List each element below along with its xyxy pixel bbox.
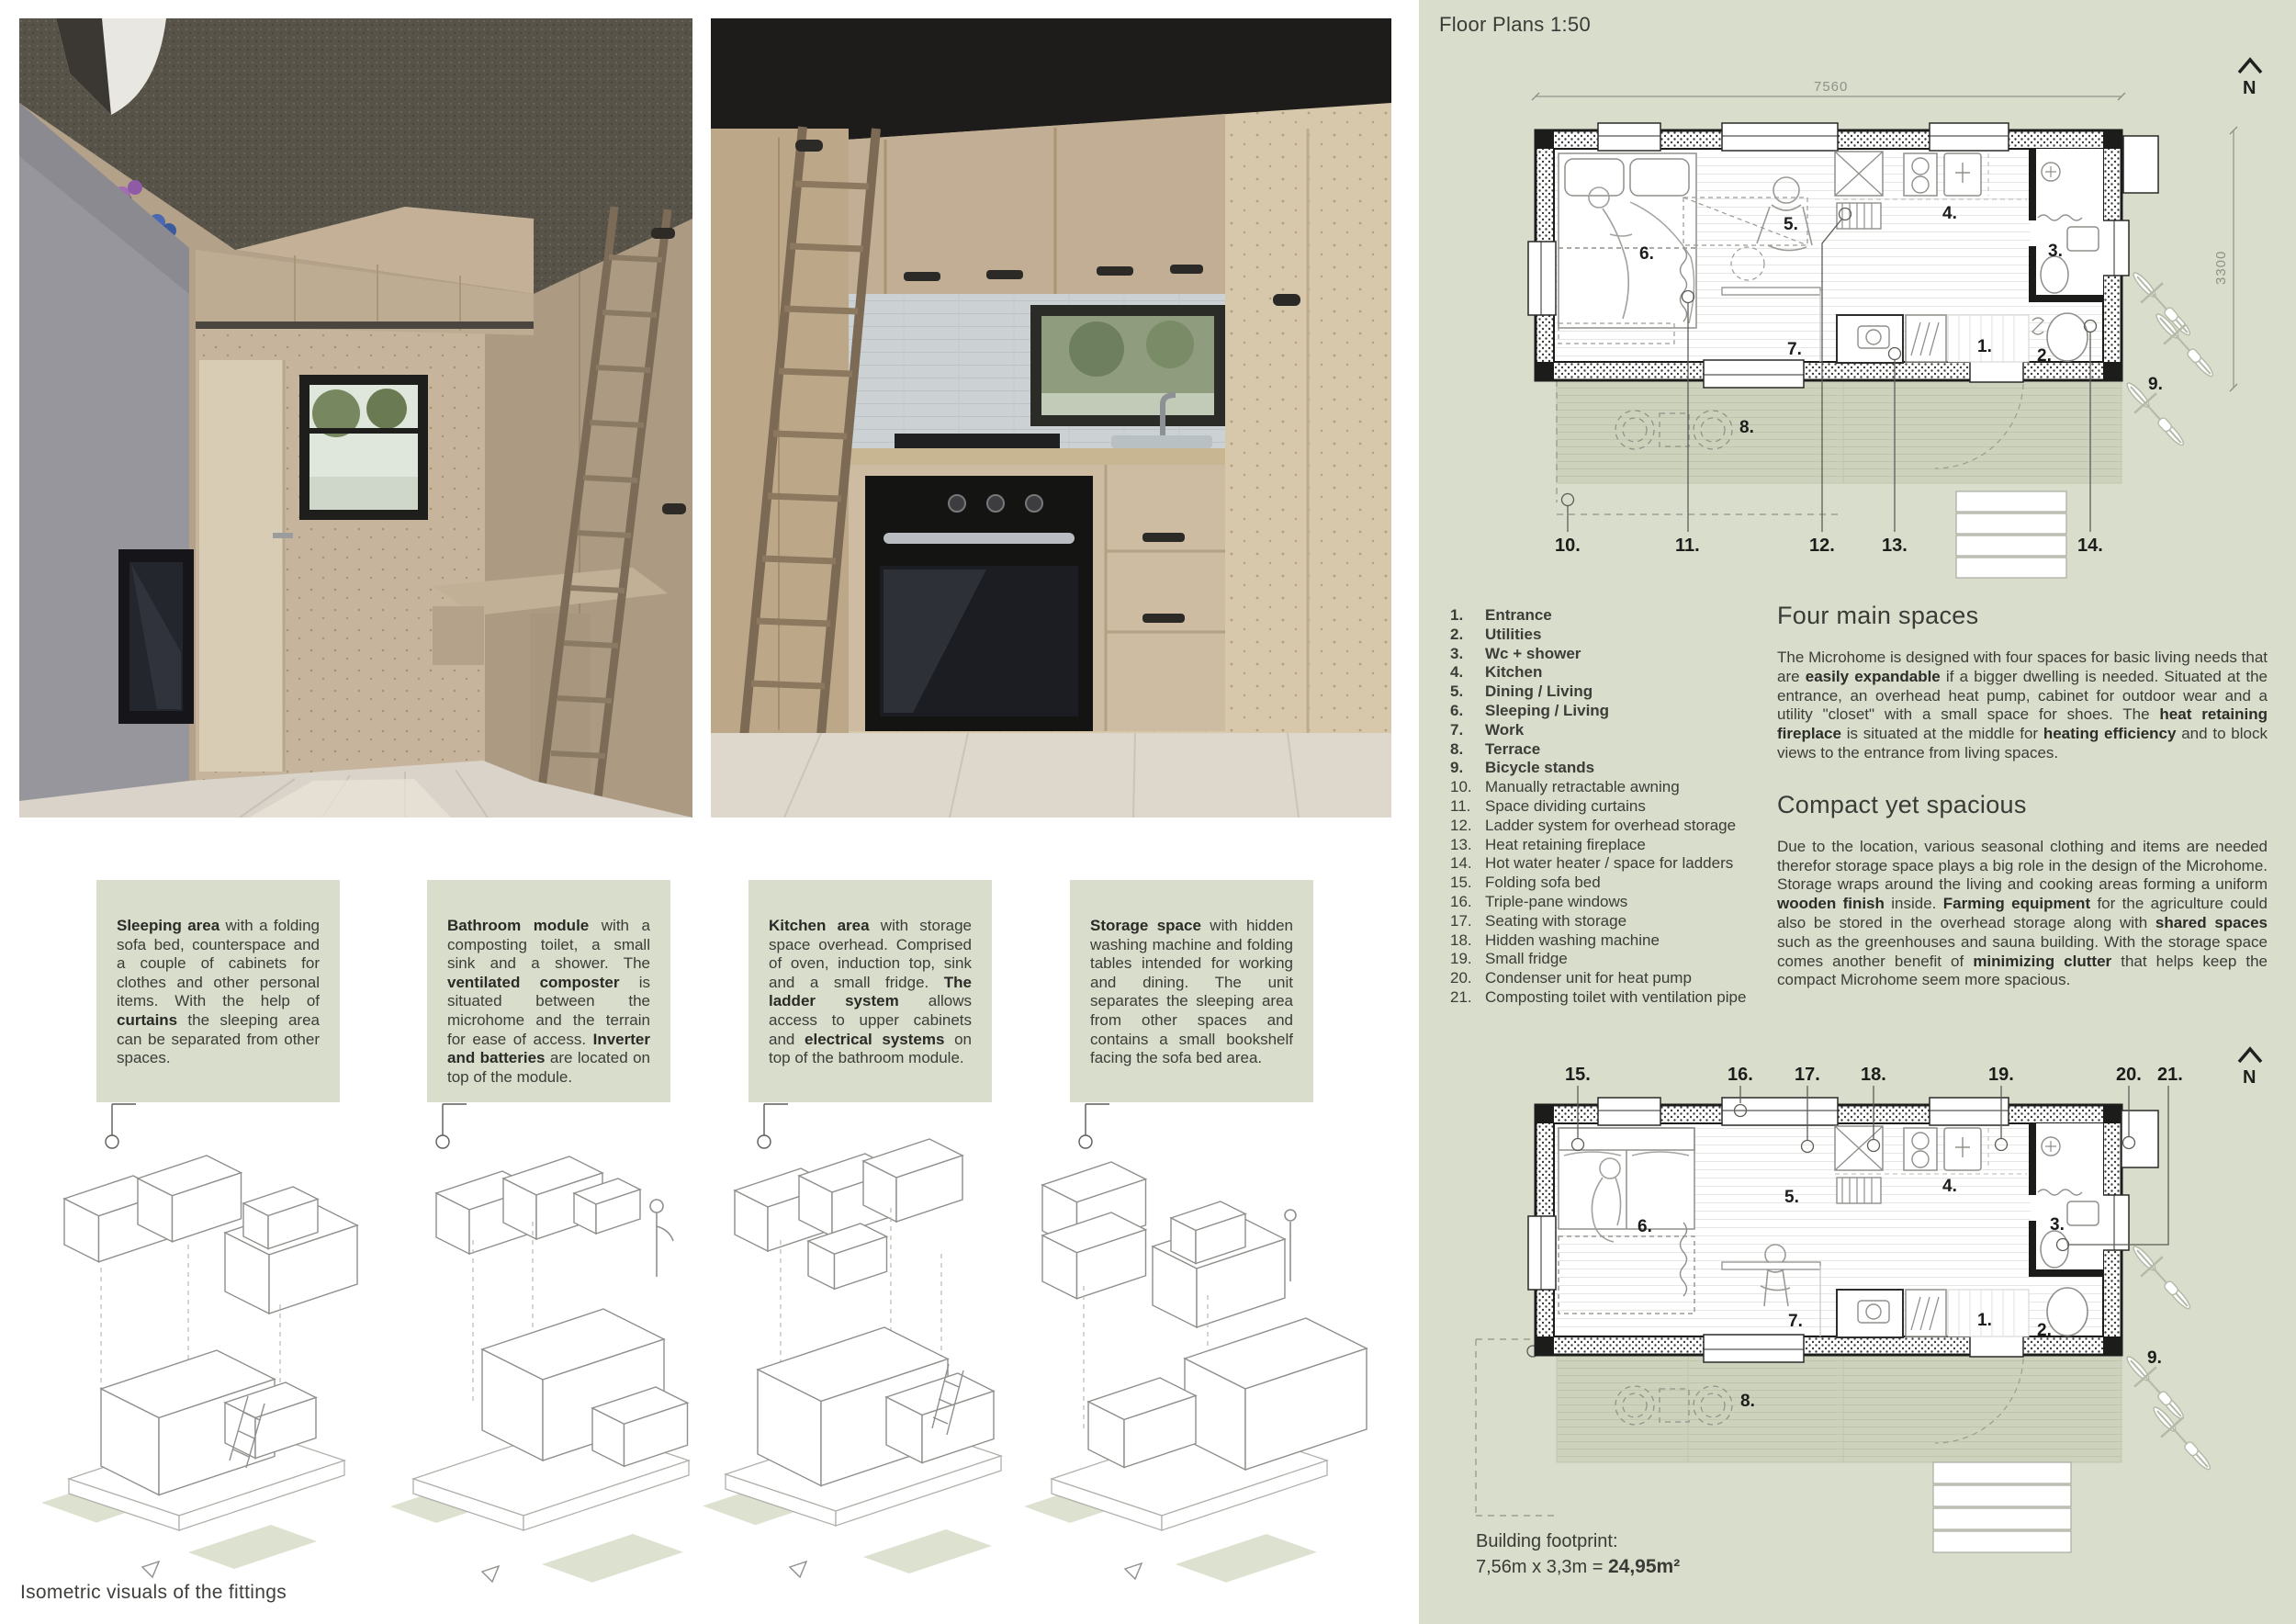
stored-ladder — [1837, 203, 1881, 229]
svg-text:8.: 8. — [1740, 1392, 1755, 1411]
svg-text:12.: 12. — [1809, 536, 1835, 556]
legend-item: 20.Condenser unit for heat pump — [1445, 969, 1775, 988]
legend-item: 1.Entrance — [1445, 606, 1775, 626]
coat-closet — [1906, 315, 1946, 362]
svg-text:10.: 10. — [1555, 536, 1581, 556]
isometric-fittings-drawings — [0, 1102, 1419, 1603]
photo2-sink — [1111, 435, 1212, 448]
svg-text:6.: 6. — [1638, 1217, 1652, 1236]
svg-text:2.: 2. — [2037, 1321, 2052, 1340]
section-heading: Four main spaces — [1777, 602, 2268, 630]
legend-item: 8.Terrace — [1445, 740, 1775, 760]
iso-group-kitchen — [703, 1139, 1001, 1577]
legend-item: 18.Hidden washing machine — [1445, 931, 1775, 951]
svg-text:4.: 4. — [1942, 204, 1957, 223]
legend-item: 11.Space dividing curtains — [1445, 797, 1775, 817]
section-paragraph: Due to the location, various seasonal cl… — [1777, 838, 2268, 990]
north-arrow: N — [2239, 1049, 2261, 1088]
note-text: Sleeping area with a folding sofa bed, c… — [117, 917, 320, 1066]
terrace-steps — [1956, 491, 2066, 578]
svg-text:N: N — [2243, 78, 2256, 98]
folding-table — [1722, 288, 1820, 295]
svg-text:18.: 18. — [1861, 1065, 1886, 1085]
photo-interior-living — [19, 18, 692, 818]
legend-item: 14.Hot water heater / space for ladders — [1445, 854, 1775, 874]
folding-table — [1722, 1262, 1820, 1269]
legend-item: 13.Heat retaining fireplace — [1445, 836, 1775, 855]
legend-item: 2.Utilities — [1445, 626, 1775, 645]
stored-ladder — [1837, 1178, 1881, 1203]
panel-title: Floor Plans 1:50 — [1439, 13, 1591, 37]
legend-item: 7.Work — [1445, 721, 1775, 740]
legend-item: 3.Wc + shower — [1445, 645, 1775, 664]
note-text: Storage space with hidden washing machin… — [1090, 917, 1293, 1066]
presentation-board: Sleeping area with a folding sofa bed, c… — [0, 0, 2296, 1624]
svg-text:9.: 9. — [2148, 375, 2163, 394]
svg-text:3300: 3300 — [2213, 251, 2229, 285]
bicycle-stands — [2117, 1237, 2221, 1479]
section-paragraph: The Microhome is designed with four spac… — [1777, 648, 2268, 763]
bathroom — [2029, 149, 2103, 302]
dimension-depth: 3300 — [2213, 127, 2237, 391]
svg-text:5.: 5. — [1784, 1188, 1799, 1207]
svg-text:3.: 3. — [2050, 1215, 2065, 1235]
legend-item: 12.Ladder system for overhead storage — [1445, 817, 1775, 836]
terrace-steps — [1933, 1462, 2071, 1552]
note-kitchen-area: Kitchen area with storage space overhead… — [748, 880, 992, 1102]
svg-text:1.: 1. — [1977, 1311, 1992, 1330]
legend-item: 5.Dining / Living — [1445, 682, 1775, 702]
bathroom — [2029, 1123, 2103, 1277]
photo-interior-kitchen — [711, 18, 1391, 818]
iso-group-bathroom — [390, 1156, 689, 1583]
note-text: Kitchen area with storage space overhead… — [769, 917, 972, 1066]
legend-item: 10.Manually retractable awning — [1445, 778, 1775, 797]
legend-item: 19.Small fridge — [1445, 950, 1775, 969]
floor-plan-upper: 7560 3300 N — [1419, 51, 2296, 602]
footprint-total: 24,95m² — [1608, 1556, 1680, 1577]
footprint-label: Building footprint: — [1476, 1528, 1680, 1554]
footprint-calc: 7,56m x 3,3m = — [1476, 1557, 1608, 1577]
photo1-loft-rail — [196, 321, 534, 329]
svg-text:7560: 7560 — [1814, 79, 1848, 95]
fireplace — [1837, 315, 1903, 363]
photo2-window — [1030, 305, 1225, 426]
coat-closet — [1906, 1290, 1946, 1336]
terrace — [1557, 1355, 2122, 1462]
dimension-width: 7560 — [1532, 79, 2125, 100]
svg-text:6.: 6. — [1639, 244, 1654, 264]
note-leader-lines — [106, 1104, 1109, 1148]
svg-text:N: N — [2243, 1067, 2256, 1088]
svg-text:21.: 21. — [2157, 1065, 2183, 1085]
plan-legend: 1.Entrance 2.Utilities 3.Wc + shower 4.K… — [1445, 606, 1775, 1008]
svg-text:4.: 4. — [1942, 1177, 1957, 1196]
legend-item: 9.Bicycle stands — [1445, 759, 1775, 778]
legend-item: 6.Sleeping / Living — [1445, 702, 1775, 721]
svg-text:2.: 2. — [2037, 346, 2052, 366]
legend-item: 21.Composting toilet with ventilation pi… — [1445, 988, 1775, 1008]
svg-text:16.: 16. — [1728, 1065, 1753, 1085]
photo1-window — [299, 375, 428, 520]
section-heading: Compact yet spacious — [1777, 791, 2268, 819]
svg-text:19.: 19. — [1988, 1065, 2014, 1085]
note-storage-space: Storage space with hidden washing machin… — [1070, 880, 1313, 1102]
north-arrow: N — [2239, 60, 2261, 98]
photo2-induction — [895, 434, 1060, 448]
svg-text:14.: 14. — [2077, 536, 2103, 556]
utilities — [2047, 1288, 2088, 1336]
svg-text:7.: 7. — [1788, 1312, 1803, 1331]
svg-text:9.: 9. — [2147, 1348, 2162, 1368]
svg-text:5.: 5. — [1784, 215, 1798, 234]
svg-text:17.: 17. — [1795, 1065, 1820, 1085]
photo2-oven — [865, 476, 1093, 731]
svg-text:3.: 3. — [2048, 242, 2063, 261]
svg-text:7.: 7. — [1787, 340, 1802, 359]
svg-text:15.: 15. — [1565, 1065, 1591, 1085]
legend-item: 15.Folding sofa bed — [1445, 874, 1775, 893]
photo2-counter — [849, 448, 1225, 465]
awning-outline — [1476, 1339, 1557, 1516]
callout-numbers: 15. 16. 17. 18. 19. 20. 21. — [1565, 1065, 2183, 1085]
bicycle-stands — [2117, 264, 2223, 455]
svg-text:8.: 8. — [1739, 418, 1754, 437]
floor-plans-panel: Floor Plans 1:50 7560 — [1419, 0, 2296, 1624]
isometric-caption: Isometric visuals of the fittings — [20, 1582, 287, 1604]
svg-text:1.: 1. — [1977, 337, 1992, 356]
note-bathroom-module: Bathroom module with a composting toilet… — [427, 880, 670, 1102]
description-column: Four main spaces The Microhome is design… — [1777, 602, 2268, 1018]
fireplace — [1837, 1290, 1903, 1337]
building-footprint: Building footprint: 7,56m x 3,3m = 24,95… — [1476, 1528, 1680, 1580]
legend-item: 16.Triple-pane windows — [1445, 893, 1775, 912]
note-sleeping-area: Sleeping area with a folding sofa bed, c… — [96, 880, 340, 1102]
svg-text:11.: 11. — [1675, 536, 1700, 556]
terrace — [1557, 380, 2122, 483]
iso-group-storage — [1024, 1162, 1367, 1583]
legend-item: 4.Kitchen — [1445, 663, 1775, 682]
legend-item: 17.Seating with storage — [1445, 912, 1775, 931]
note-text: Bathroom module with a composting toilet… — [447, 917, 650, 1086]
iso-group-sleeping — [41, 1156, 357, 1577]
svg-text:20.: 20. — [2116, 1065, 2142, 1085]
svg-text:13.: 13. — [1882, 536, 1908, 556]
